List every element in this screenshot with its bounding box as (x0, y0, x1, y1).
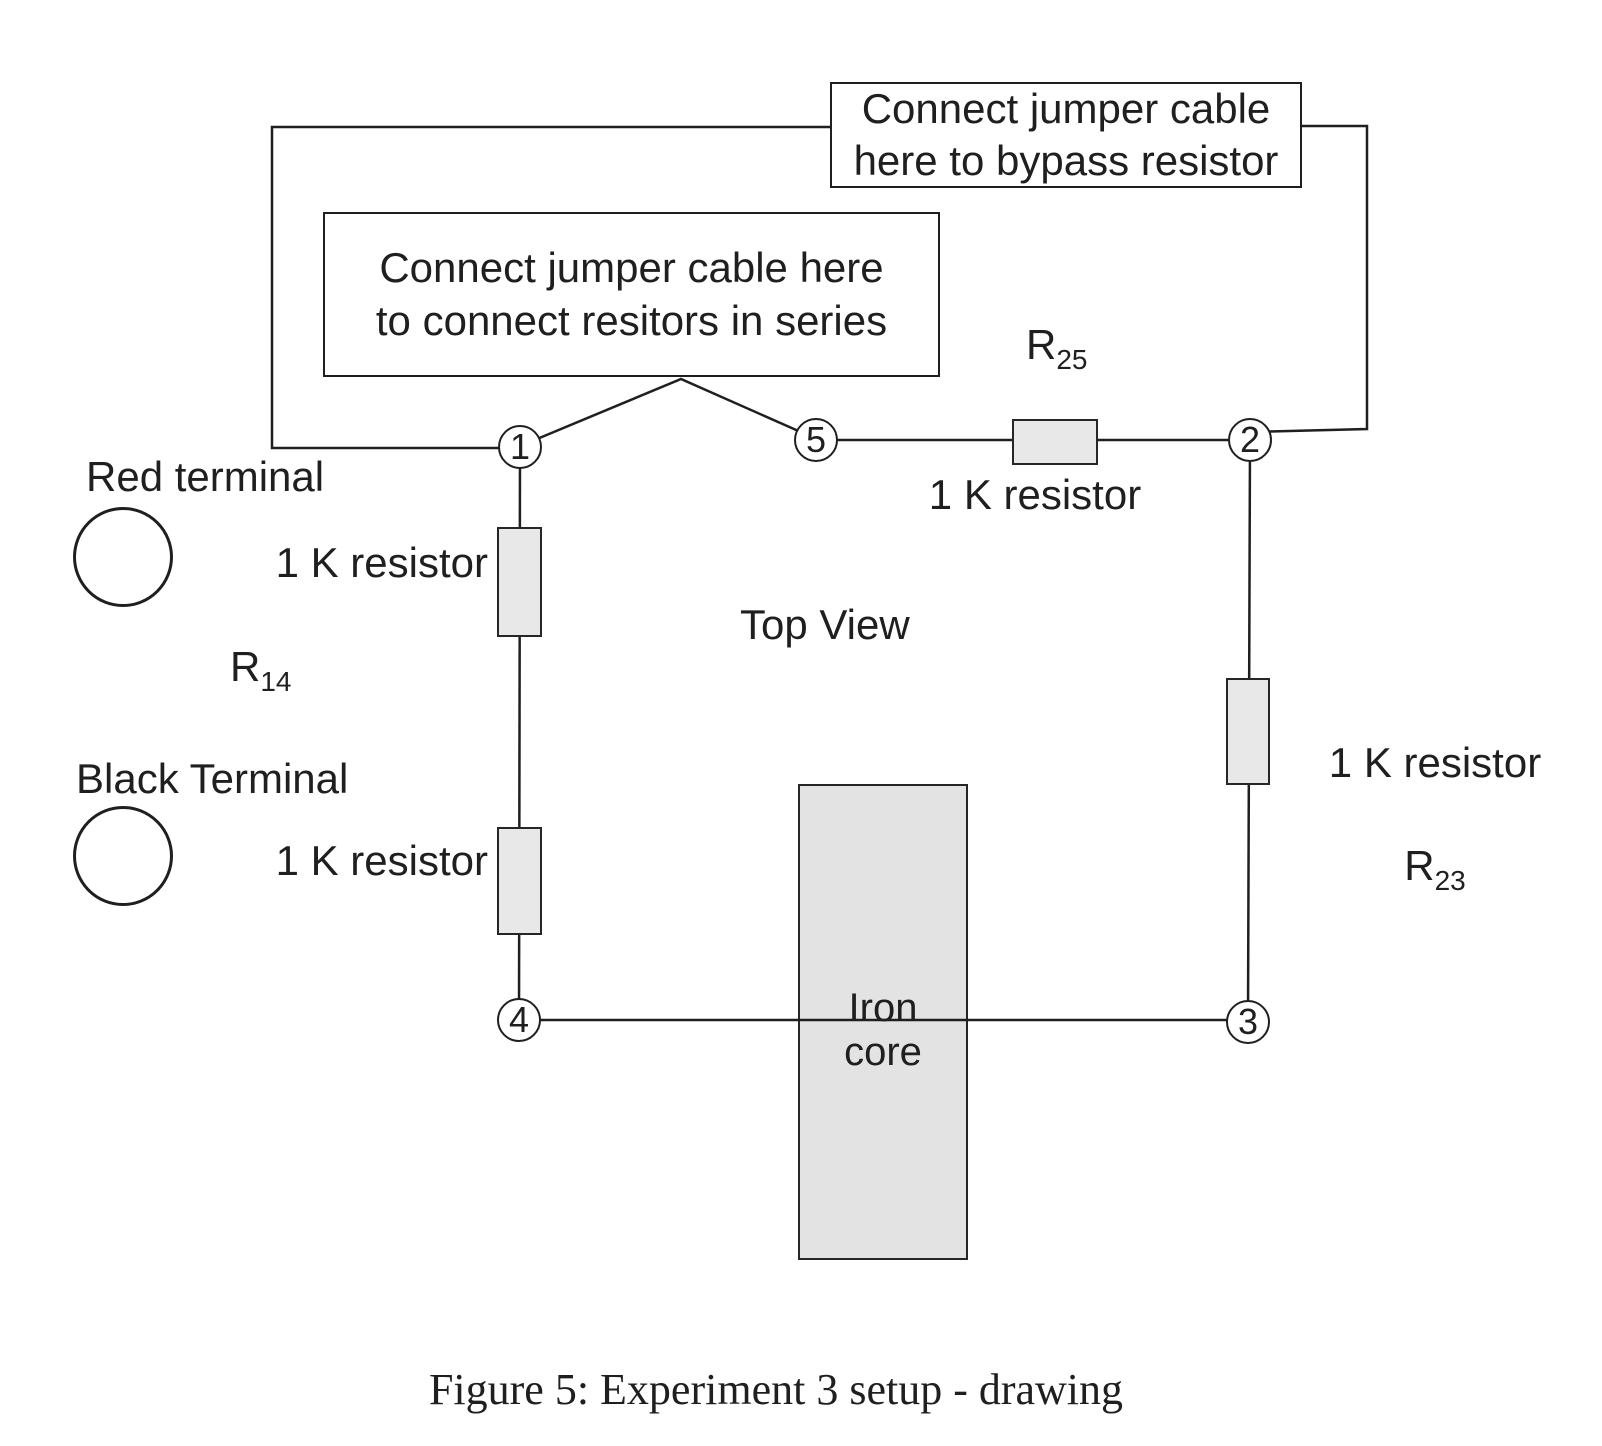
node-1: 1 (498, 425, 542, 469)
r25-value-label: 1 K resistor (920, 472, 1150, 518)
r14-ref-subscript: 14 (260, 666, 291, 697)
r14-ref-label: R14 (230, 644, 292, 690)
circuit-diagram-figure: Connect jumper cable here to bypass resi… (0, 0, 1602, 1446)
r25-ref-main: R (1026, 321, 1056, 368)
r14-lower-value-label: 1 K resistor (240, 838, 488, 884)
resistor-r23-body (1226, 678, 1270, 785)
resistor-r14-lower-body (497, 827, 542, 935)
node-4: 4 (497, 998, 541, 1042)
figure-caption: Figure 5: Experiment 3 setup - drawing (0, 1364, 1552, 1415)
black-terminal-circle (73, 806, 173, 906)
r14-ref-main: R (230, 643, 260, 690)
r14-upper-value-label: 1 K resistor (240, 540, 488, 586)
callout-series-connection: Connect jumper cable here to connect res… (323, 212, 940, 377)
r23-ref-subscript: 23 (1435, 865, 1466, 896)
r23-label-block: 1 K resistor R23 (1318, 686, 1552, 942)
r25-ref-label: R25 (1026, 322, 1088, 368)
callout-bypass-resistor: Connect jumper cable here to bypass resi… (830, 82, 1302, 188)
resistor-r25-body (1012, 419, 1098, 465)
iron-core-label: Iron core (798, 986, 968, 1074)
black-terminal-label: Black Terminal (76, 756, 348, 802)
node-5-number: 5 (806, 419, 826, 461)
node-3: 3 (1226, 1000, 1270, 1044)
red-terminal-label: Red terminal (86, 454, 324, 500)
node-1-number: 1 (510, 426, 530, 468)
node-2: 2 (1228, 418, 1272, 462)
node-2-number: 2 (1240, 419, 1260, 461)
red-terminal-circle (73, 507, 173, 607)
node-4-number: 4 (509, 999, 529, 1041)
r23-ref-main: R (1404, 842, 1434, 889)
r23-ref-label: R23 (1318, 840, 1552, 891)
r23-value-label: 1 K resistor (1318, 737, 1552, 788)
node-5: 5 (794, 418, 838, 462)
top-view-label: Top View (740, 602, 910, 648)
node-3-number: 3 (1238, 1001, 1258, 1043)
r25-ref-subscript: 25 (1056, 344, 1087, 375)
wire-series-callout-pointer (525, 379, 812, 444)
resistor-r14-upper-body (497, 527, 542, 637)
